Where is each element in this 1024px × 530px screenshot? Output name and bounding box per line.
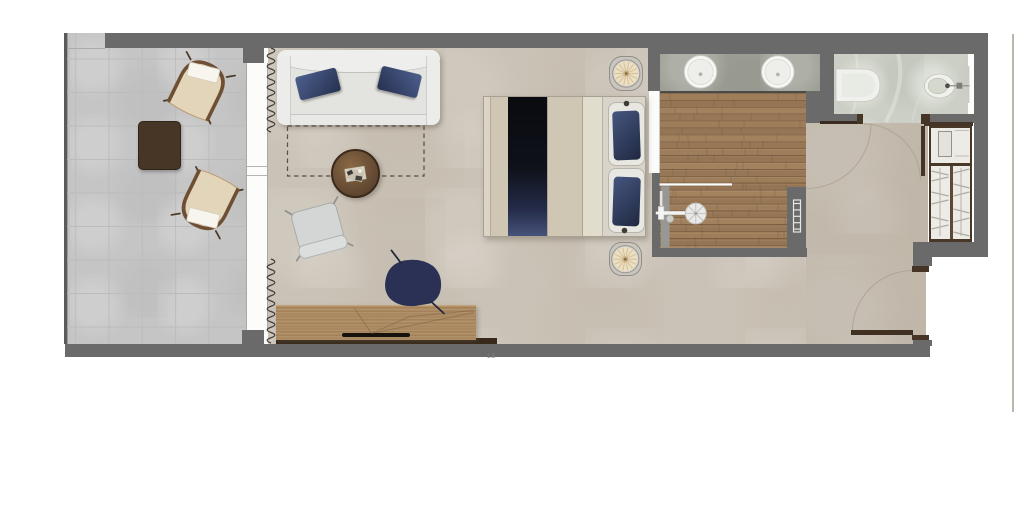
svg-text:1.5: 1.5 bbox=[487, 354, 496, 360]
